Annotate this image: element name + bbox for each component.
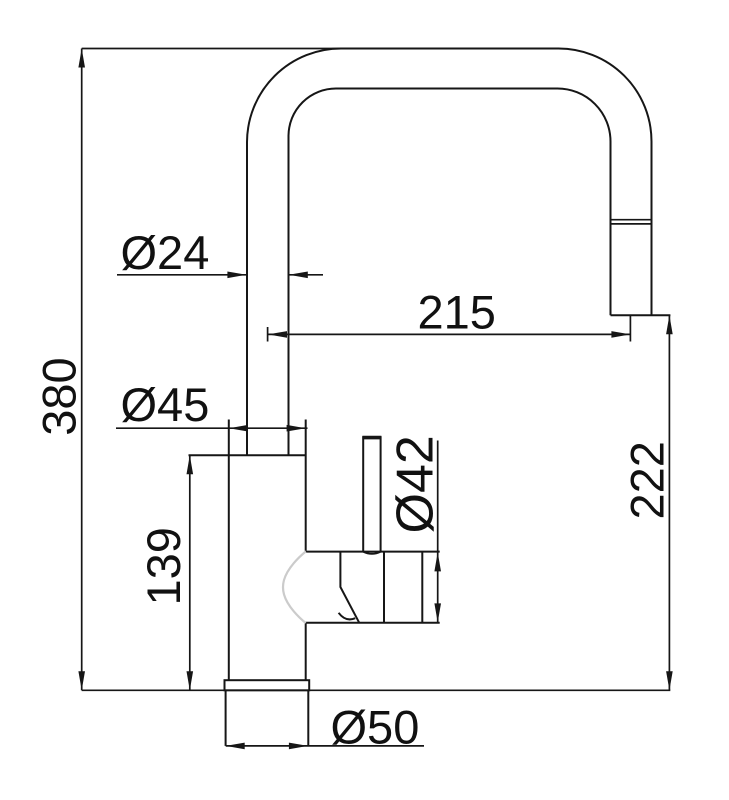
svg-text:215: 215 [418, 286, 496, 339]
svg-text:222: 222 [620, 441, 673, 519]
svg-text:139: 139 [137, 527, 190, 605]
svg-text:380: 380 [33, 357, 86, 435]
svg-text:Ø24: Ø24 [121, 226, 210, 279]
svg-text:Ø42: Ø42 [386, 435, 444, 533]
svg-text:Ø45: Ø45 [121, 378, 210, 431]
svg-text:Ø50: Ø50 [331, 701, 420, 754]
